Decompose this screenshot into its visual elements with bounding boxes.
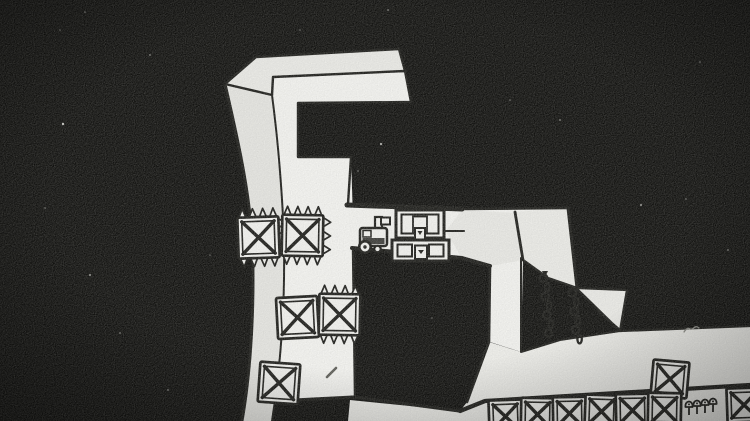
game-frame <box>0 0 750 421</box>
game-canvas[interactable] <box>0 0 750 421</box>
vignette-overlay <box>0 0 750 421</box>
